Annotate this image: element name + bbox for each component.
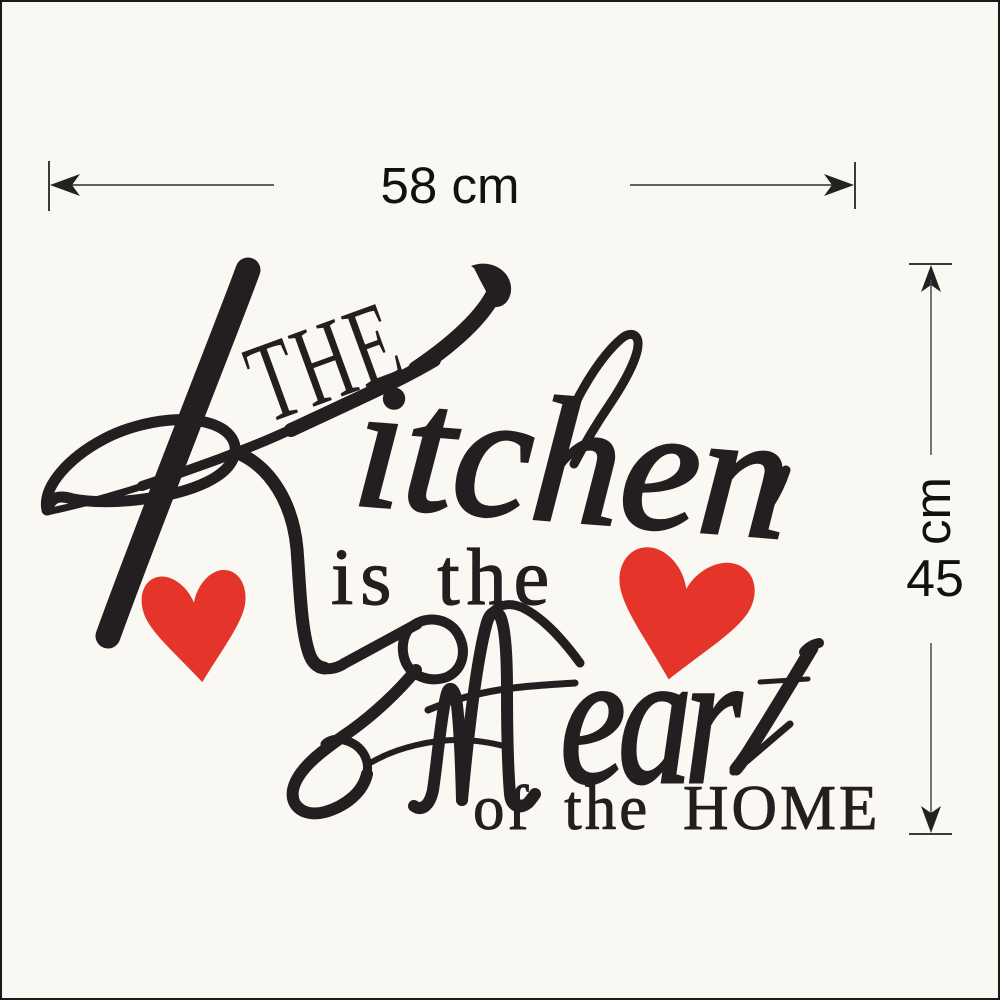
svg-text:58 cm: 58 cm: [381, 157, 520, 214]
svg-text:cm: cm: [904, 477, 961, 545]
svg-text:45: 45: [906, 550, 964, 608]
svg-text:of the HOME: of the HOME: [473, 773, 880, 843]
